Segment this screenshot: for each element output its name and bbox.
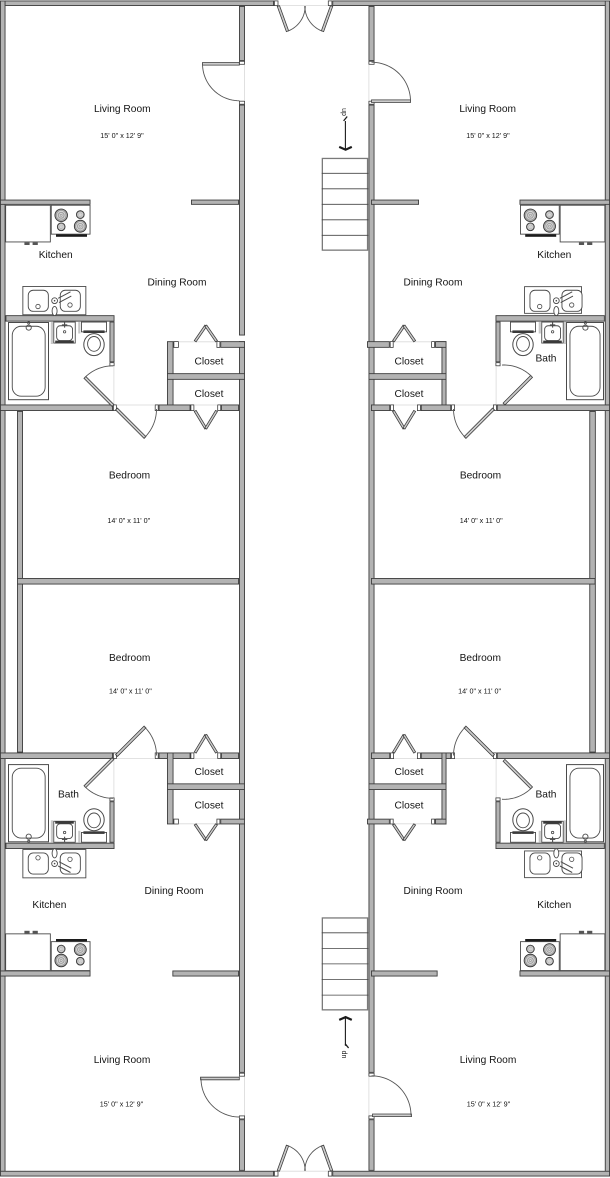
svg-text:Bath: Bath <box>536 790 557 801</box>
svg-text:14' 0" x 11' 0": 14' 0" x 11' 0" <box>109 687 152 696</box>
svg-text:Living Room: Living Room <box>94 104 151 115</box>
svg-text:Bath: Bath <box>58 790 79 801</box>
svg-text:Closet: Closet <box>195 767 224 778</box>
svg-text:Closet: Closet <box>195 389 224 400</box>
svg-text:up: up <box>341 1051 348 1059</box>
svg-text:Closet: Closet <box>395 767 424 778</box>
svg-text:Bedroom: Bedroom <box>109 653 150 664</box>
svg-text:dn: dn <box>341 108 348 116</box>
svg-text:15' 0" x 12' 9": 15' 0" x 12' 9" <box>467 1100 511 1109</box>
svg-text:Closet: Closet <box>395 357 424 368</box>
svg-text:Dining Room: Dining Room <box>404 886 463 897</box>
svg-text:Kitchen: Kitchen <box>39 250 73 261</box>
svg-text:15' 0" x 12' 9": 15' 0" x 12' 9" <box>100 131 144 140</box>
svg-text:Bedroom: Bedroom <box>109 471 150 482</box>
svg-text:Closet: Closet <box>195 801 224 812</box>
svg-text:15' 0" x 12' 9": 15' 0" x 12' 9" <box>100 1100 144 1109</box>
svg-text:14' 0" x 11' 0": 14' 0" x 11' 0" <box>460 516 503 525</box>
svg-text:Closet: Closet <box>395 801 424 812</box>
svg-text:14' 0" x 11' 0": 14' 0" x 11' 0" <box>107 516 150 525</box>
svg-text:Closet: Closet <box>195 357 224 368</box>
svg-text:Dining Room: Dining Room <box>148 277 207 288</box>
svg-text:Kitchen: Kitchen <box>32 900 66 911</box>
svg-text:Kitchen: Kitchen <box>537 900 571 911</box>
svg-text:Closet: Closet <box>395 389 424 400</box>
svg-text:Dining Room: Dining Room <box>404 277 463 288</box>
svg-text:Bedroom: Bedroom <box>460 653 501 664</box>
svg-text:15' 0" x 12' 9": 15' 0" x 12' 9" <box>466 131 510 140</box>
svg-text:Living Room: Living Room <box>459 104 516 115</box>
svg-text:Bedroom: Bedroom <box>460 471 501 482</box>
svg-text:Living Room: Living Room <box>94 1055 151 1066</box>
svg-text:Kitchen: Kitchen <box>537 250 571 261</box>
svg-text:Dining Room: Dining Room <box>145 886 204 897</box>
svg-text:Bath: Bath <box>536 354 557 365</box>
svg-text:14' 0" x 11' 0": 14' 0" x 11' 0" <box>458 687 501 696</box>
svg-text:Living Room: Living Room <box>460 1055 517 1066</box>
